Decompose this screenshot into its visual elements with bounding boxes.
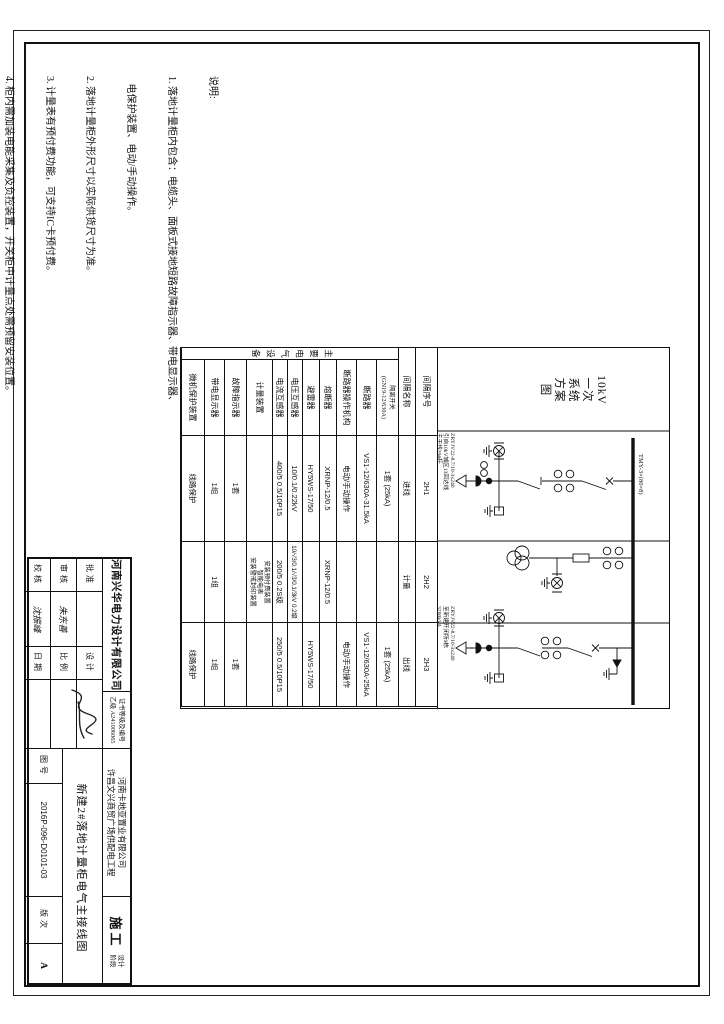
stage-label: 设计 阶段 <box>109 955 124 968</box>
ground-icon <box>485 505 493 517</box>
title-block: 河南兴华电力设计有限公司 证书等级及编号 乙级 A241006065 河南卡地亚… <box>27 557 132 985</box>
scheme-title-line: 图 <box>538 352 552 428</box>
cell-2h1: 进线 <box>398 436 415 542</box>
cell-2h3: 1套 (25kA) <box>376 623 398 707</box>
certificate-value: 乙级 A241006065 <box>108 696 117 743</box>
cell-2h3 <box>319 623 336 707</box>
group-header-main-equipment: 主要电气设备 <box>181 348 398 360</box>
cell-2h2: 200/5 0.2S级 <box>272 542 287 623</box>
cell-2h2: 安装预付费装置 智能电表 安装警戒封印装置 <box>246 542 272 623</box>
cell-2h3: 250/5 0.5/10P15 <box>272 623 287 707</box>
certificate-label: 证书等级及编号 <box>117 698 126 742</box>
row-label: 断路器操作机构 <box>336 360 356 436</box>
drawing-number-value: 2016P-096-D0101-03 <box>25 784 62 897</box>
bay3-destination-note: 至新建开闭所9栋 <box>442 606 450 648</box>
cell-2h3: 1套 <box>224 623 246 707</box>
cell-2h2 <box>224 542 246 623</box>
fuse-icon <box>573 554 589 562</box>
approve-label: 批准 <box>76 559 102 592</box>
cell-2h3: 电动/手动操作 <box>336 623 356 707</box>
design-label: 设计 <box>76 647 102 680</box>
scheme-title-line: 方案 <box>552 352 566 428</box>
ground-icon <box>485 672 493 684</box>
row-label: 电流互感器 <box>272 360 287 436</box>
ground-icon <box>484 445 492 457</box>
note-line: 3. 计量表有预付费功能，可支持IC卡预付费。 <box>42 76 56 416</box>
bay1-source-note: 引自10kV城区13回达线 <box>442 433 450 491</box>
scheme-title: 10kV 一次 系统 方案 图 <box>538 352 608 428</box>
note-line: 2. 落地计量柜外形尺寸以实际供货尺寸为准。 <box>83 76 97 416</box>
cell-2h3: HY5WS-17/50 <box>302 623 319 707</box>
row-label: 间隔名称 <box>398 348 415 436</box>
design-signature-cell <box>76 680 102 749</box>
date-label: 日期 <box>25 647 50 680</box>
scale-value <box>50 680 76 749</box>
drawing-title: 新建2#落地计量柜电气主接线图 <box>62 749 102 987</box>
cell-2h2 <box>181 542 204 623</box>
row-label: 断路器 <box>356 360 376 436</box>
fault-indicator-icon <box>486 645 492 651</box>
row-label: 带电显示器 <box>204 360 224 436</box>
note-line: 1. 落地计量柜内包含：电缆头、面板式接地短路故障指示器、带电显示器、 <box>164 76 178 416</box>
cable-terminal-icon <box>456 642 473 654</box>
row-label: 间隔序号 <box>415 348 437 436</box>
approve-value <box>76 592 102 647</box>
row-label: 隔离开关 (GN19-12/630A) <box>376 360 398 436</box>
drawing-sheet-page: 说明: 1. 落地计量柜内包含：电缆头、面板式接地短路故障指示器、带电显示器、 … <box>0 0 724 1024</box>
cell-2h2: 2H2 <box>415 542 437 623</box>
cell-2h3: 出线 <box>398 623 415 707</box>
revision-label: 版次 <box>25 897 62 944</box>
cable-head-icon <box>476 476 481 486</box>
cell-2h1: 10/0.1/0.22kV <box>287 436 302 542</box>
client-project-cell: 河南卡地亚置业有限公司 许昌文兴商贸广场供配电工程 <box>102 749 130 897</box>
scheme-title-line: 系统 <box>566 352 580 428</box>
cell-2h3: 1组 <box>204 623 224 707</box>
cell-2h1: 线路保护 <box>181 436 204 542</box>
arrow-icon <box>613 660 621 667</box>
cell-2h1: 1套 <box>224 436 246 542</box>
cell-2h1: VS1-12/630A-31.5kA <box>356 436 376 542</box>
cell-2h1: HY5WS-17/50 <box>302 436 319 542</box>
cell-2h2: 计量 <box>398 542 415 623</box>
bay-2h3-symbols <box>456 610 633 684</box>
equipment-table: 间隔序号 2H1 2H2 2H3 间隔名称 进线 计量 出线 主要电气设备 隔离… <box>180 347 438 709</box>
row-label: 计量装置 <box>246 360 272 436</box>
client-company: 河南卡地亚置业有限公司 <box>117 777 128 868</box>
voltage-transformer-icon <box>507 546 529 570</box>
scheme-title-line: 10kV <box>594 352 608 428</box>
cell-2h2 <box>356 542 376 623</box>
ground-icon <box>542 577 550 589</box>
certificate-cell: 证书等级及编号 乙级 A241006065 <box>102 692 130 749</box>
review-label: 审核 <box>50 559 76 592</box>
cell-2h1: 400/5 0.5/10P15 <box>272 436 287 542</box>
row-label: 故障指示器 <box>224 360 246 436</box>
bay1-cable-spec: ZRYJV22-8.7/10-3x240 <box>449 433 455 488</box>
cell-2h1: 1组 <box>204 436 224 542</box>
row-label: 微机保护装置 <box>181 360 204 436</box>
cable-terminal-icon <box>456 475 473 487</box>
cell-2h2 <box>336 542 356 623</box>
revision-value: A <box>25 944 62 987</box>
cell-2h2: 10/√3/0.1/√3/0.1/3kV 0.2级 <box>287 542 302 623</box>
cell-2h2 <box>376 542 398 623</box>
cell-2h1: 电动/手动操作 <box>336 436 356 542</box>
bay-2h2-symbols <box>507 546 633 592</box>
ground-icon <box>484 612 492 624</box>
project-name: 许昌文兴商贸广场供配电工程 <box>106 769 117 877</box>
cell-2h1: XRNP-12/0.5 <box>319 436 336 542</box>
note-line: 4. 柜内需加装电能采集及负控装置，开关柜中计量点处需预留安装位置。 <box>1 76 15 416</box>
cell-2h3 <box>246 623 272 707</box>
date-value <box>25 680 50 749</box>
cell-2h2: XRNP-12/0.5 <box>319 542 336 623</box>
busbar-label: TMY-3×(80×8) <box>637 454 644 495</box>
scale-label: 比例 <box>50 647 76 680</box>
cell-2h2 <box>302 542 319 623</box>
design-company: 河南兴华电力设计有限公司 <box>102 559 130 692</box>
check-value: 沈振峰 <box>25 592 50 647</box>
cell-2h1 <box>246 436 272 542</box>
fault-indicator-icon <box>486 478 492 484</box>
check-label: 校核 <box>25 559 50 592</box>
review-value: 朱东善 <box>50 592 76 647</box>
cell-2h3: 线路保护 <box>181 623 204 707</box>
scheme-title-line: 一次 <box>580 352 594 428</box>
landscape-drawing: 说明: 1. 落地计量柜内包含：电缆头、面板式接地短路故障指示器、带电显示器、 … <box>0 0 724 1024</box>
row-label: 避雷器 <box>302 360 319 436</box>
live-display-lamp-icon <box>552 578 563 589</box>
drawing-number-label: 图号 <box>25 749 62 784</box>
cell-2h3: 2H3 <box>415 623 437 707</box>
earth-switch-icon <box>604 668 609 680</box>
cable-head-icon <box>476 643 481 653</box>
bay3-cable-spec: ZRYJV22-8.7/10-3x240 <box>449 606 455 661</box>
cell-2h1: 2H1 <box>415 436 437 542</box>
row-label: 熔断器 <box>319 360 336 436</box>
bay-2h1-symbols <box>456 443 633 517</box>
stage-value: 施工 <box>107 916 126 948</box>
cell-2h3: VS1-12/630A-25kA <box>356 623 376 707</box>
note-line: 电保护装置、电动/手动操作。 <box>124 76 138 416</box>
row-label: 电压互感器 <box>287 360 302 436</box>
cell-2h1: 1套 (25kA) <box>376 436 398 542</box>
cell-2h2: 1组 <box>204 542 224 623</box>
cell-2h3 <box>287 623 302 707</box>
stage-cell: 施工 设计 阶段 <box>102 897 130 987</box>
